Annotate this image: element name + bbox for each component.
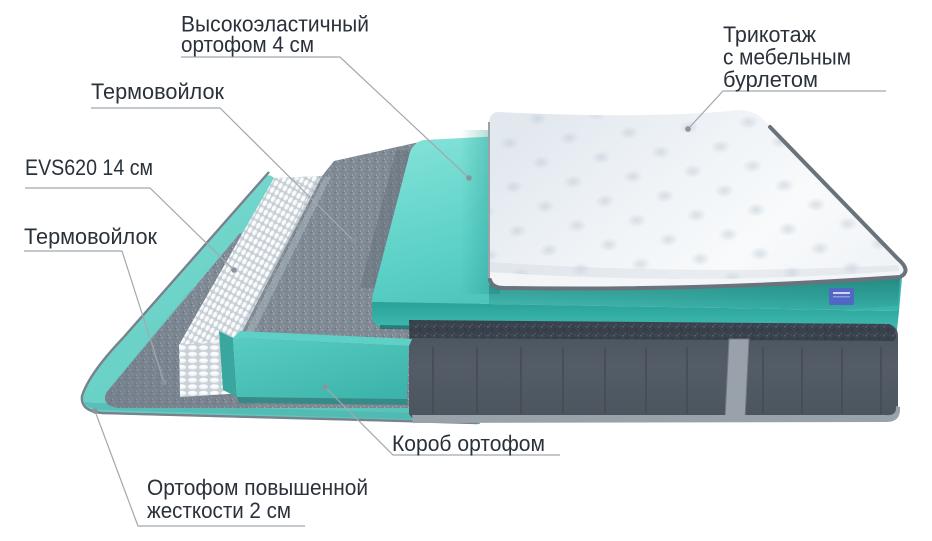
svg-text:Термовойлок: Термовойлок [24, 224, 157, 249]
svg-text:Термовойлок: Термовойлок [91, 79, 224, 104]
svg-text:жесткости 2 см: жесткости 2 см [147, 498, 291, 523]
svg-text:Ортофом повышенной: Ортофом повышенной [147, 475, 368, 500]
svg-text:EVS620 14 см: EVS620 14 см [25, 155, 153, 180]
svg-text:Короб ортофом: Короб ортофом [392, 431, 545, 456]
svg-text:Трикотаж: Трикотаж [723, 22, 816, 47]
svg-text:с мебельным: с мебельным [723, 45, 851, 70]
svg-text:ортофом 4 см: ортофом 4 см [181, 32, 314, 57]
svg-text:бурлетом: бурлетом [723, 67, 818, 92]
